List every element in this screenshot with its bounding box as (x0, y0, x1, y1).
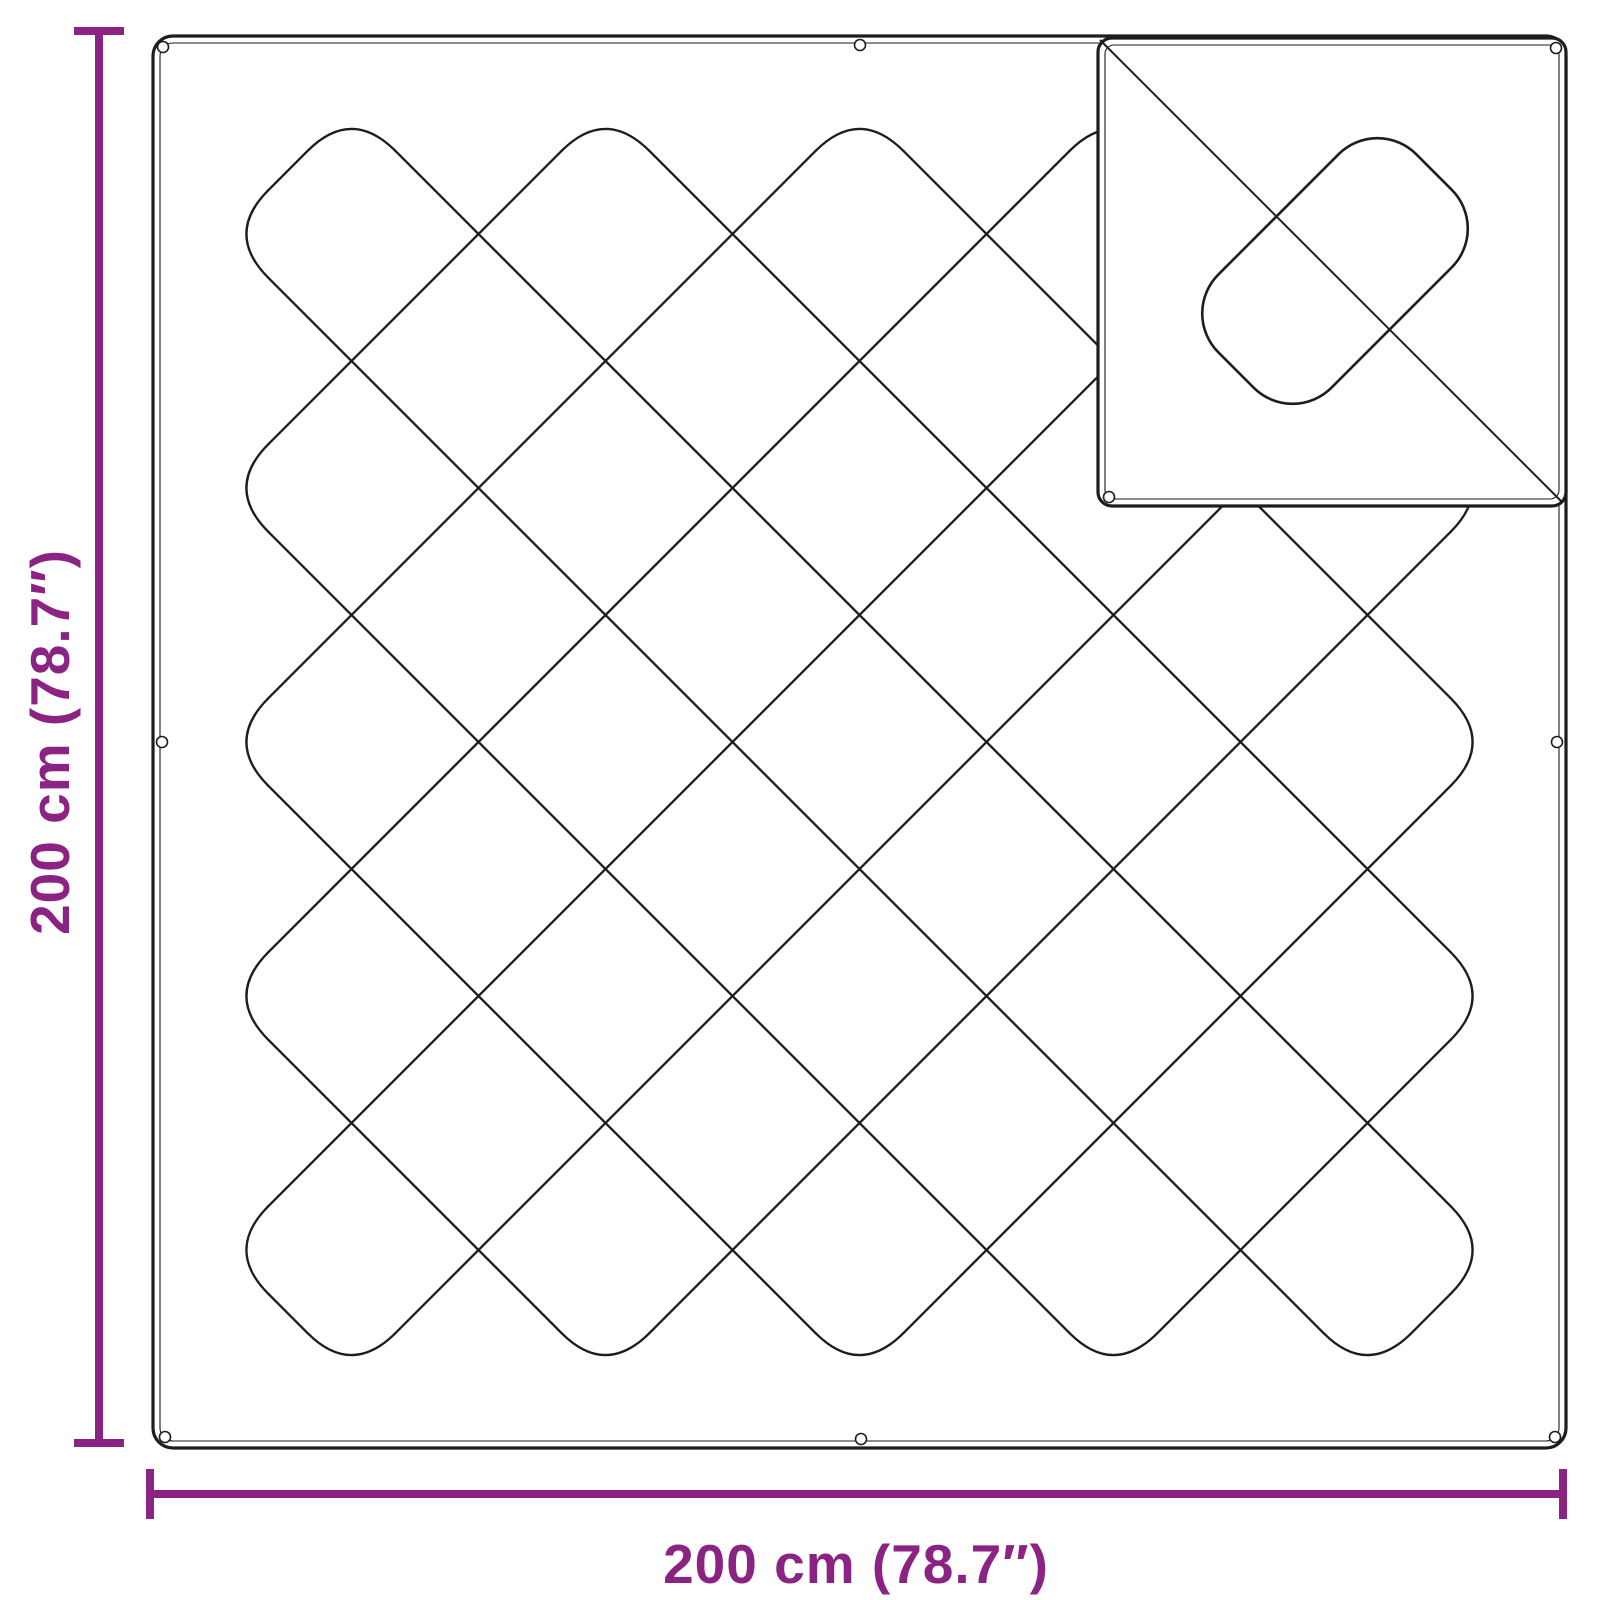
dimension-diagram-page: 200 cm (78.7″) 200 cm (78.7″) (0, 0, 1600, 1600)
width-dimension-label: 200 cm (78.7″) (663, 1533, 1049, 1595)
folded-corner-flap (1098, 38, 1566, 506)
height-dimension-label: 200 cm (78.7″) (19, 549, 81, 935)
dimension-diagram: 200 cm (78.7″) 200 cm (78.7″) (0, 0, 1600, 1600)
